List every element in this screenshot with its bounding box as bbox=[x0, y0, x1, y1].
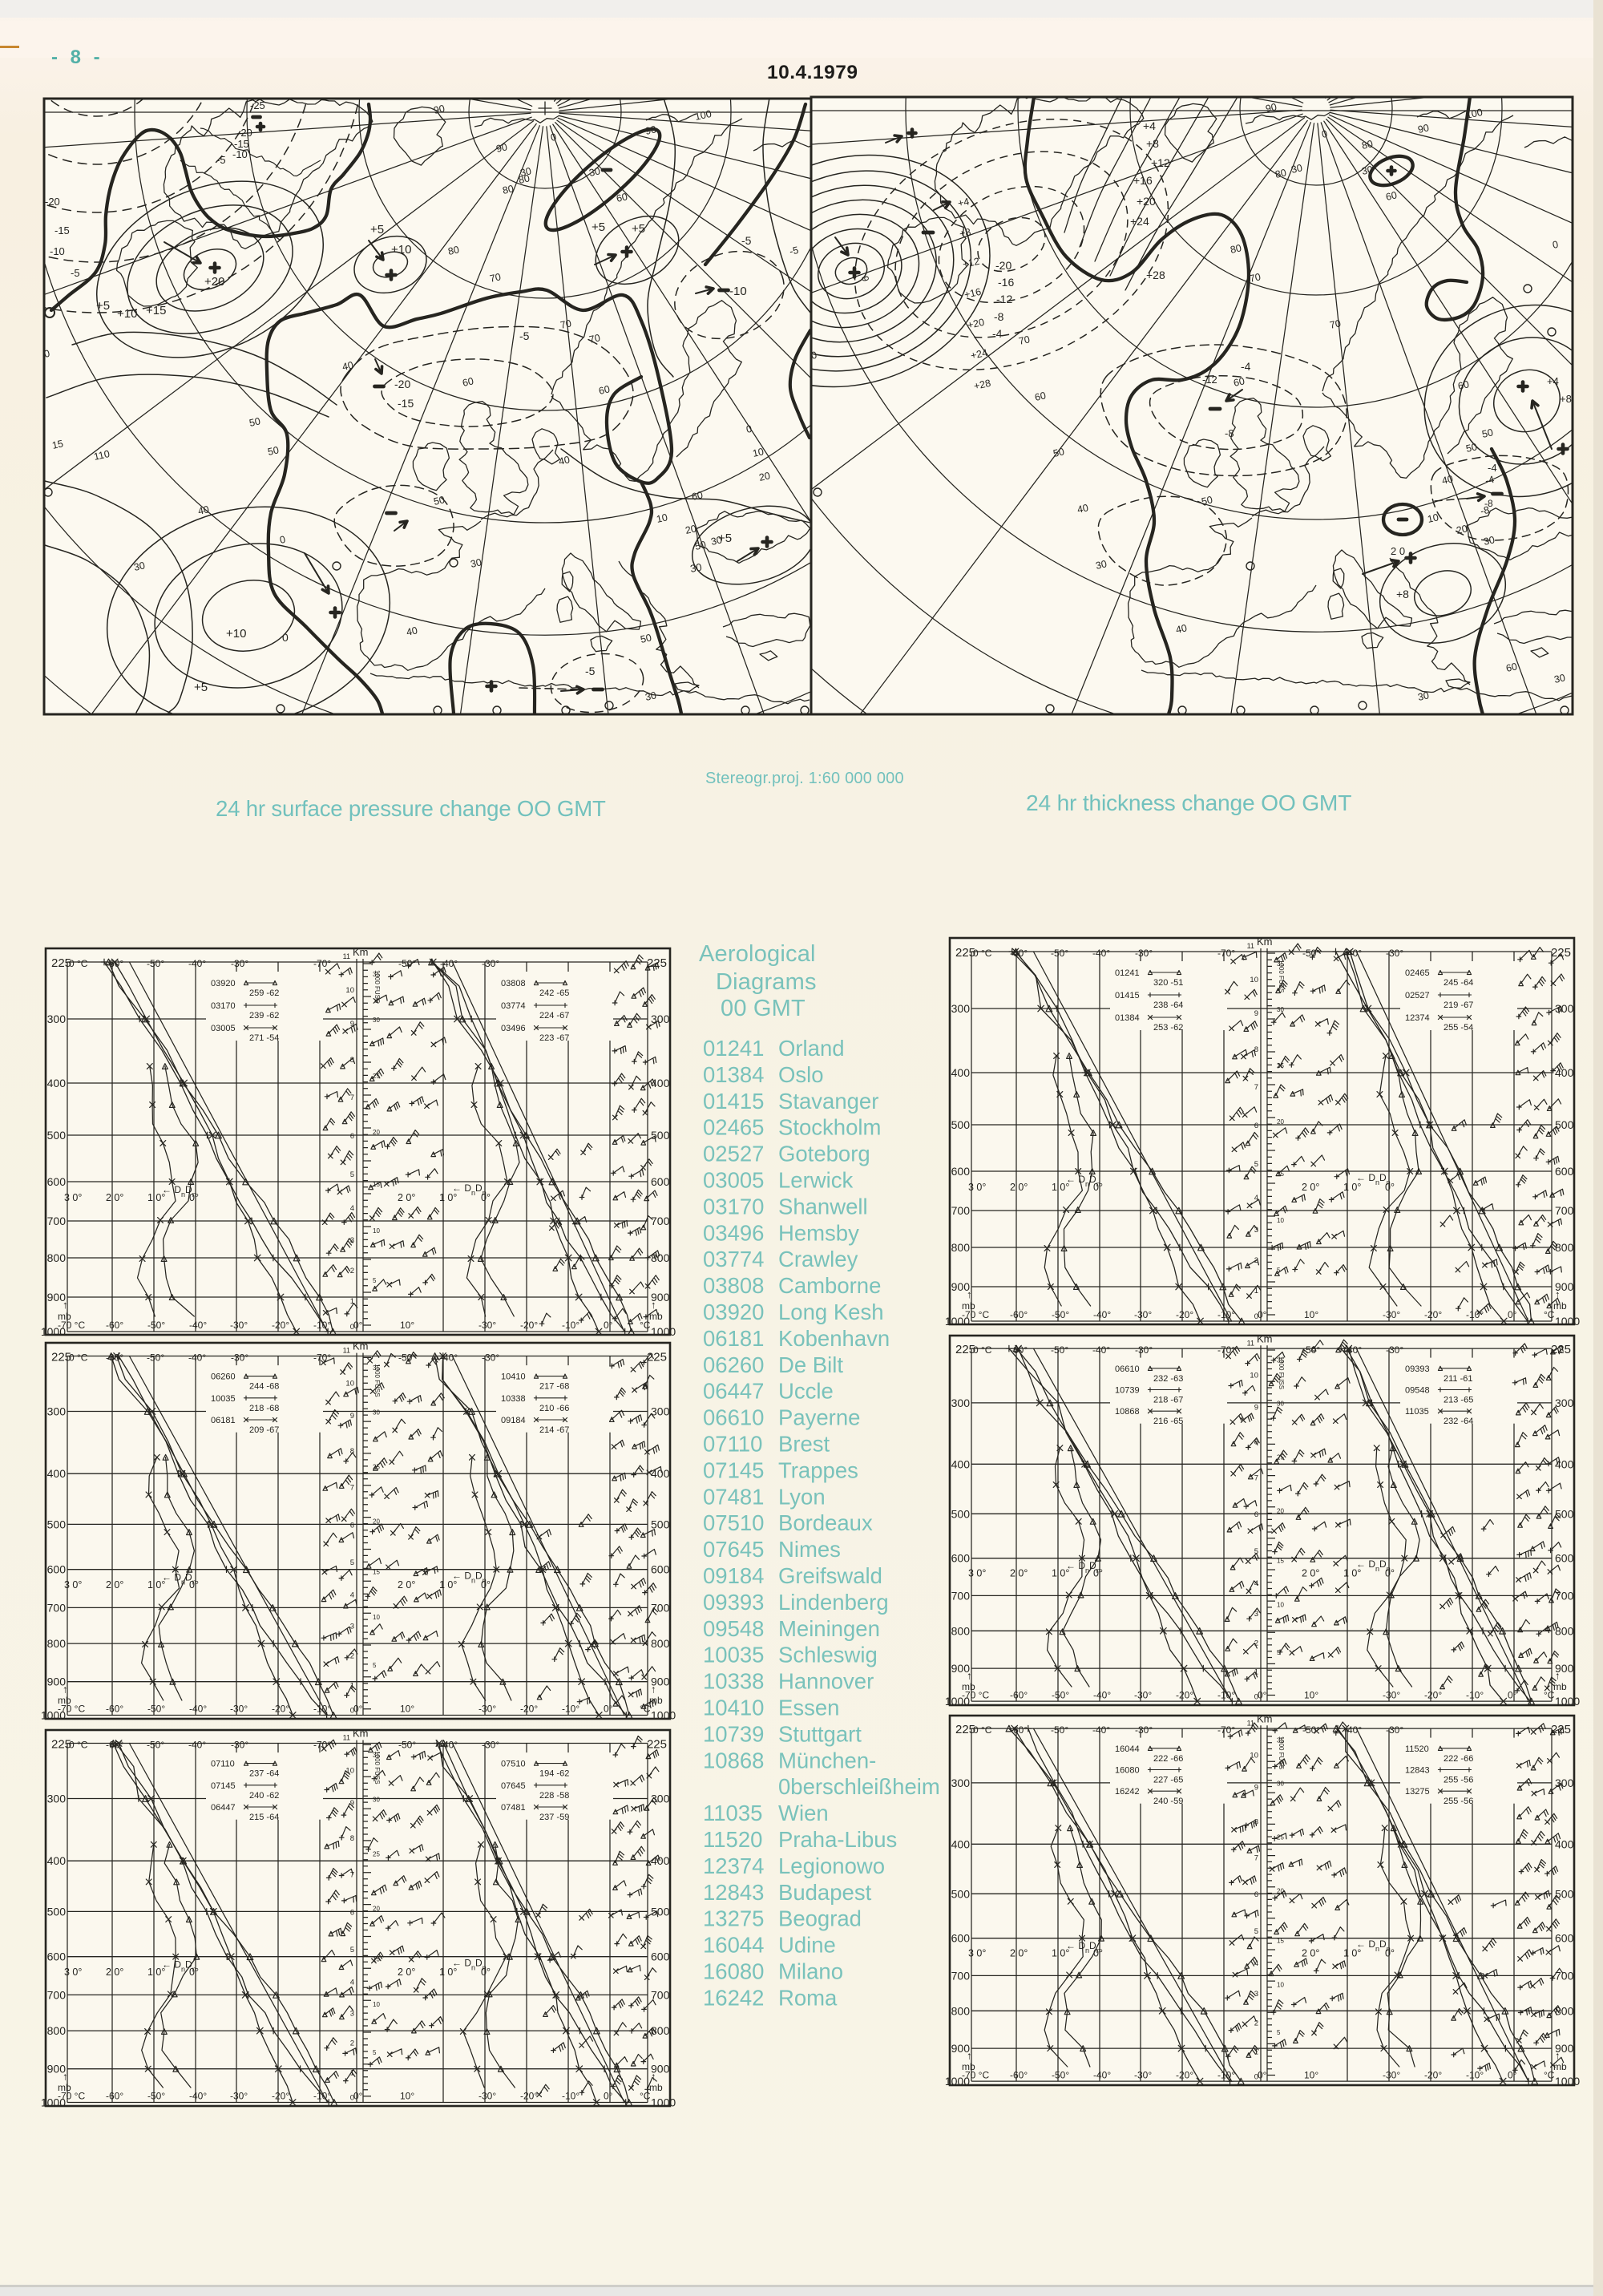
svg-text:271 -54: 271 -54 bbox=[249, 1033, 279, 1043]
svg-text:-30°: -30° bbox=[231, 1739, 248, 1750]
svg-text:mb: mb bbox=[649, 2082, 663, 2093]
svg-text:-30°: -30° bbox=[1386, 948, 1403, 959]
svg-text:245 -64: 245 -64 bbox=[1444, 978, 1473, 988]
svg-text:40: 40 bbox=[558, 454, 571, 467]
svg-text:800: 800 bbox=[47, 2024, 67, 2037]
svg-text:30: 30 bbox=[373, 1017, 380, 1024]
svg-text:01415: 01415 bbox=[703, 1089, 764, 1114]
svg-text:+20: +20 bbox=[204, 275, 224, 289]
svg-text:3 0°: 3 0° bbox=[968, 1182, 986, 1193]
svg-text:10338: 10338 bbox=[703, 1669, 764, 1694]
svg-text:-10°: -10° bbox=[1466, 2069, 1484, 2080]
svg-text:-30°: -30° bbox=[231, 958, 248, 969]
svg-text:Roma: Roma bbox=[778, 1985, 838, 2010]
svg-text:°C: °C bbox=[640, 1320, 651, 1331]
svg-text:°C: °C bbox=[1544, 1309, 1555, 1320]
svg-text:-30°: -30° bbox=[1134, 1309, 1152, 1320]
svg-text:-50°: -50° bbox=[147, 958, 164, 969]
svg-text:↑: ↑ bbox=[63, 2070, 68, 2082]
svg-text:700: 700 bbox=[951, 1969, 971, 1982]
svg-text:-12: -12 bbox=[996, 293, 1012, 305]
svg-text:90: 90 bbox=[1265, 101, 1278, 115]
svg-text:800: 800 bbox=[951, 2004, 971, 2017]
svg-text:500: 500 bbox=[47, 1129, 67, 1142]
svg-text:-40°: -40° bbox=[189, 1320, 207, 1331]
svg-text:-70 °C: -70 °C bbox=[962, 1689, 989, 1700]
svg-text:06610: 06610 bbox=[1115, 1364, 1140, 1374]
svg-text:-70°: -70° bbox=[1217, 948, 1235, 959]
svg-text:03170: 03170 bbox=[703, 1194, 764, 1219]
svg-text:02527: 02527 bbox=[703, 1142, 764, 1166]
svg-text:↑: ↑ bbox=[63, 1683, 68, 1695]
svg-text:-15: -15 bbox=[55, 224, 70, 236]
svg-text:01415: 01415 bbox=[1115, 991, 1140, 1000]
svg-text:Km: Km bbox=[353, 1340, 369, 1352]
svg-text:0°: 0° bbox=[604, 2091, 613, 2102]
svg-text:9: 9 bbox=[1254, 1404, 1258, 1413]
svg-text:10739: 10739 bbox=[703, 1721, 764, 1746]
svg-text:1000: 1000 bbox=[651, 2096, 676, 2109]
svg-text:20: 20 bbox=[373, 1518, 380, 1525]
svg-text:15: 15 bbox=[373, 1569, 380, 1576]
svg-text:35: 35 bbox=[1277, 1356, 1284, 1364]
svg-text:400: 400 bbox=[651, 1077, 670, 1089]
svg-text:Wien: Wien bbox=[778, 1801, 829, 1825]
svg-text:09548: 09548 bbox=[1405, 1386, 1430, 1396]
svg-text:-70 °C: -70 °C bbox=[58, 2091, 85, 2102]
svg-text:60: 60 bbox=[598, 383, 612, 397]
svg-text:16242: 16242 bbox=[1115, 1787, 1140, 1797]
svg-text:6: 6 bbox=[350, 1908, 354, 1917]
svg-text:1000: 1000 bbox=[1555, 2075, 1580, 2088]
svg-text:-20°: -20° bbox=[1424, 1309, 1442, 1320]
svg-text:10410: 10410 bbox=[501, 1372, 526, 1382]
svg-text:03774: 03774 bbox=[501, 1001, 526, 1011]
svg-text:80: 80 bbox=[1361, 138, 1375, 152]
svg-text:-60°: -60° bbox=[106, 2091, 123, 2102]
svg-text:Km: Km bbox=[353, 1728, 369, 1740]
svg-text:30: 30 bbox=[1277, 1006, 1284, 1013]
svg-text:5: 5 bbox=[350, 1170, 354, 1179]
svg-text:- 8 -: - 8 - bbox=[51, 46, 103, 68]
svg-text:°C: °C bbox=[640, 2091, 651, 2102]
svg-text:02465: 02465 bbox=[703, 1115, 764, 1140]
svg-text:300: 300 bbox=[1555, 1777, 1574, 1789]
svg-text:11035: 11035 bbox=[703, 1801, 762, 1825]
svg-text:500: 500 bbox=[1555, 1507, 1574, 1520]
svg-text:+10: +10 bbox=[226, 627, 246, 641]
svg-text:5: 5 bbox=[373, 1662, 377, 1669]
svg-text:30: 30 bbox=[1361, 164, 1375, 177]
svg-text:600: 600 bbox=[951, 1932, 971, 1945]
svg-text:10410: 10410 bbox=[703, 1696, 764, 1720]
svg-text:215 -64: 215 -64 bbox=[249, 1813, 279, 1822]
svg-text:50: 50 bbox=[433, 494, 446, 507]
svg-text:10: 10 bbox=[1250, 1371, 1258, 1380]
svg-text:2 0°: 2 0° bbox=[1302, 1568, 1319, 1579]
svg-text:3 0°: 3 0° bbox=[64, 1192, 82, 1203]
svg-text:15: 15 bbox=[1277, 1937, 1284, 1944]
svg-text:+5: +5 bbox=[194, 681, 208, 694]
svg-text:+4: +4 bbox=[957, 196, 971, 209]
svg-text:10739: 10739 bbox=[1115, 1386, 1140, 1396]
svg-text:259 -62: 259 -62 bbox=[249, 988, 279, 998]
svg-text:60: 60 bbox=[1457, 378, 1471, 392]
svg-text:1 0°: 1 0° bbox=[1343, 1182, 1361, 1193]
svg-text:217 -68: 217 -68 bbox=[539, 1382, 569, 1392]
svg-text:+8: +8 bbox=[959, 226, 972, 240]
svg-text:-50°: -50° bbox=[147, 1739, 164, 1750]
svg-text:Uccle: Uccle bbox=[778, 1379, 834, 1404]
svg-text:07110: 07110 bbox=[703, 1432, 762, 1457]
svg-text:400: 400 bbox=[651, 1854, 670, 1867]
svg-text:24 hr surface pressure change: 24 hr surface pressure change OO GMT bbox=[216, 796, 606, 821]
svg-text:400: 400 bbox=[951, 1066, 971, 1079]
svg-text:90: 90 bbox=[433, 103, 446, 116]
svg-text:600: 600 bbox=[651, 1175, 670, 1188]
svg-text:20: 20 bbox=[373, 1129, 380, 1136]
svg-text:03005: 03005 bbox=[703, 1168, 764, 1193]
svg-text:09393: 09393 bbox=[703, 1590, 764, 1615]
svg-text:500: 500 bbox=[47, 1905, 67, 1918]
svg-text:-8: -8 bbox=[1225, 427, 1234, 439]
svg-text:03920: 03920 bbox=[703, 1300, 764, 1324]
svg-text:11: 11 bbox=[343, 1347, 350, 1355]
svg-text:700: 700 bbox=[651, 1215, 670, 1227]
svg-text:40: 40 bbox=[1441, 473, 1455, 487]
svg-text:-25: -25 bbox=[250, 99, 265, 111]
svg-text:4: 4 bbox=[350, 1979, 354, 1987]
svg-text:30: 30 bbox=[689, 561, 703, 575]
svg-text:30: 30 bbox=[1290, 162, 1304, 176]
svg-text:2 0°: 2 0° bbox=[1010, 1568, 1028, 1579]
svg-text:-70 °C: -70 °C bbox=[58, 1704, 85, 1715]
svg-text:50: 50 bbox=[1481, 426, 1495, 440]
svg-text:211 -61: 211 -61 bbox=[1444, 1374, 1473, 1384]
svg-text:800: 800 bbox=[47, 1637, 67, 1650]
svg-text:60: 60 bbox=[691, 489, 705, 503]
svg-text:Shanwell: Shanwell bbox=[778, 1194, 868, 1219]
svg-text:400: 400 bbox=[47, 1077, 67, 1089]
svg-text:30: 30 bbox=[588, 165, 602, 179]
svg-text:-5: -5 bbox=[741, 234, 752, 247]
svg-text:1 0°: 1 0° bbox=[439, 1192, 457, 1203]
svg-text:-16: -16 bbox=[998, 276, 1014, 289]
svg-text:1: 1 bbox=[1254, 1287, 1258, 1296]
svg-text:-70°: -70° bbox=[313, 958, 331, 969]
svg-text:-70 °C: -70 °C bbox=[58, 1320, 85, 1331]
svg-text:70: 70 bbox=[489, 271, 503, 285]
svg-text:9: 9 bbox=[350, 1412, 354, 1421]
svg-text:30: 30 bbox=[1277, 1401, 1284, 1408]
svg-text:-20: -20 bbox=[45, 196, 60, 208]
svg-text:Diagrams: Diagrams bbox=[716, 969, 817, 995]
svg-text:-5: -5 bbox=[519, 329, 530, 342]
svg-text:Stavanger: Stavanger bbox=[778, 1089, 878, 1114]
svg-text:218 -67: 218 -67 bbox=[1153, 1396, 1183, 1405]
svg-text:15: 15 bbox=[1277, 1557, 1284, 1564]
svg-text:30: 30 bbox=[1095, 558, 1108, 572]
svg-text:16080: 16080 bbox=[1115, 1766, 1140, 1776]
svg-text:02465: 02465 bbox=[1405, 968, 1430, 978]
svg-text:-30°: -30° bbox=[1386, 1724, 1403, 1736]
svg-text:-70°: -70° bbox=[1217, 1724, 1235, 1736]
svg-text:40: 40 bbox=[1076, 502, 1090, 515]
svg-text:7: 7 bbox=[350, 1484, 354, 1493]
svg-text:09393: 09393 bbox=[1405, 1364, 1430, 1374]
svg-text:50: 50 bbox=[1465, 441, 1479, 455]
svg-text:07110: 07110 bbox=[211, 1760, 235, 1769]
svg-text:2 0: 2 0 bbox=[1391, 545, 1405, 557]
svg-text:219 -67: 219 -67 bbox=[1444, 1000, 1473, 1010]
svg-text:30: 30 bbox=[1417, 689, 1431, 703]
svg-text:7: 7 bbox=[1254, 1853, 1258, 1862]
svg-text:-40°: -40° bbox=[1092, 1344, 1110, 1356]
svg-text:12843: 12843 bbox=[703, 1880, 764, 1905]
svg-text:03774: 03774 bbox=[703, 1247, 764, 1271]
svg-text:238 -64: 238 -64 bbox=[1153, 1000, 1183, 1010]
svg-text:10°: 10° bbox=[400, 2091, 414, 2102]
svg-text:-50°: -50° bbox=[1051, 1724, 1068, 1736]
svg-text:-50°: -50° bbox=[147, 1704, 165, 1715]
svg-text:Camborne: Camborne bbox=[778, 1273, 881, 1298]
svg-text:15: 15 bbox=[51, 438, 65, 451]
svg-text:300: 300 bbox=[47, 1405, 67, 1418]
svg-text:600: 600 bbox=[47, 1563, 67, 1576]
svg-text:5: 5 bbox=[373, 2049, 377, 2056]
svg-text:München-: München- bbox=[778, 1748, 876, 1773]
svg-text:500: 500 bbox=[951, 1507, 971, 1520]
svg-text:16080: 16080 bbox=[703, 1959, 764, 1984]
svg-text:11: 11 bbox=[1247, 942, 1254, 950]
svg-text:+8: +8 bbox=[1396, 588, 1409, 600]
svg-text:-70 °C: -70 °C bbox=[962, 1309, 989, 1320]
svg-text:-50°: -50° bbox=[1051, 1344, 1068, 1356]
svg-text:0berschleißheim: 0berschleißheim bbox=[778, 1774, 940, 1799]
svg-text:-10°: -10° bbox=[562, 1704, 579, 1715]
svg-text:20: 20 bbox=[758, 470, 772, 483]
svg-text:Km: Km bbox=[1257, 936, 1273, 948]
svg-text:60: 60 bbox=[1505, 661, 1519, 674]
svg-text:2 0°: 2 0° bbox=[106, 1192, 123, 1203]
svg-text:12374: 12374 bbox=[1405, 1013, 1430, 1023]
svg-text:0 °C: 0 °C bbox=[973, 948, 992, 959]
svg-text:25: 25 bbox=[373, 1850, 380, 1857]
svg-text:5: 5 bbox=[1277, 2029, 1281, 2036]
svg-text:-30°: -30° bbox=[1135, 948, 1153, 959]
svg-text:07481: 07481 bbox=[501, 1803, 526, 1813]
svg-text:70: 70 bbox=[559, 317, 573, 331]
svg-text:0°: 0° bbox=[353, 1320, 363, 1331]
svg-text:6: 6 bbox=[1254, 1122, 1258, 1130]
svg-text:80: 80 bbox=[1274, 167, 1288, 180]
svg-text:30: 30 bbox=[133, 560, 147, 573]
svg-text:400: 400 bbox=[951, 1837, 971, 1850]
svg-text:3 0°: 3 0° bbox=[968, 1568, 986, 1579]
svg-text:40: 40 bbox=[1175, 622, 1189, 636]
svg-text:1000: 1000 bbox=[1555, 1315, 1580, 1328]
svg-text:00 GMT: 00 GMT bbox=[721, 996, 806, 1021]
svg-text:2 0°: 2 0° bbox=[1302, 1948, 1319, 1959]
svg-text:+10: +10 bbox=[391, 243, 411, 257]
svg-text:40: 40 bbox=[341, 359, 355, 373]
svg-text:2 0°: 2 0° bbox=[398, 1192, 415, 1203]
svg-text:↑: ↑ bbox=[1555, 1670, 1561, 1682]
svg-text:-30°: -30° bbox=[1383, 2069, 1400, 2080]
svg-text:0°: 0° bbox=[1258, 1689, 1267, 1700]
svg-text:10: 10 bbox=[1277, 1982, 1284, 1989]
svg-text:07510: 07510 bbox=[703, 1510, 764, 1535]
svg-text:06447: 06447 bbox=[703, 1379, 764, 1404]
svg-text:-20°: -20° bbox=[1176, 1309, 1193, 1320]
svg-text:0 °C: 0 °C bbox=[69, 958, 88, 969]
svg-text:6: 6 bbox=[1254, 1890, 1258, 1899]
svg-text:Lerwick: Lerwick bbox=[778, 1168, 853, 1193]
svg-text:10.4.1979: 10.4.1979 bbox=[767, 62, 858, 83]
svg-text:-4: -4 bbox=[1241, 360, 1251, 373]
svg-text:10035: 10035 bbox=[211, 1394, 236, 1404]
svg-text:-30°: -30° bbox=[1135, 1724, 1153, 1736]
svg-text:30: 30 bbox=[1277, 1781, 1284, 1788]
svg-text:209 -67: 209 -67 bbox=[249, 1425, 279, 1435]
svg-text:11520: 11520 bbox=[1405, 1744, 1429, 1754]
svg-text:2 0°: 2 0° bbox=[106, 1967, 123, 1978]
svg-text:35: 35 bbox=[373, 1752, 380, 1759]
svg-text:+5: +5 bbox=[592, 220, 605, 234]
svg-text:20: 20 bbox=[1456, 523, 1469, 536]
svg-text:-20°: -20° bbox=[272, 1704, 289, 1715]
svg-text:-20: -20 bbox=[237, 127, 252, 139]
svg-text:07145: 07145 bbox=[211, 1781, 236, 1791]
svg-text:60: 60 bbox=[1233, 375, 1246, 389]
svg-text:Payerne: Payerne bbox=[778, 1405, 860, 1430]
svg-text:-15: -15 bbox=[398, 397, 414, 410]
svg-text:1000: 1000 bbox=[651, 1325, 676, 1338]
svg-text:7: 7 bbox=[350, 1093, 354, 1102]
svg-text:De Bilt: De Bilt bbox=[778, 1352, 843, 1377]
svg-text:+12: +12 bbox=[1151, 156, 1170, 169]
svg-text:-8: -8 bbox=[994, 310, 1004, 323]
svg-text:30: 30 bbox=[1483, 534, 1496, 548]
svg-text:3 0°: 3 0° bbox=[64, 1967, 82, 1978]
svg-text:-40°: -40° bbox=[189, 2091, 207, 2102]
svg-text:01241: 01241 bbox=[1115, 968, 1140, 978]
svg-text:3: 3 bbox=[350, 2010, 354, 2019]
svg-text:227 -65: 227 -65 bbox=[1153, 1776, 1183, 1785]
svg-text:255 -56: 255 -56 bbox=[1444, 1776, 1473, 1785]
svg-text:09548: 09548 bbox=[703, 1616, 764, 1641]
svg-text:-5: -5 bbox=[585, 665, 596, 677]
svg-text:225: 225 bbox=[647, 1738, 667, 1752]
svg-text:5: 5 bbox=[350, 1946, 354, 1954]
svg-text:2 0°: 2 0° bbox=[398, 1579, 415, 1591]
svg-text:218 -68: 218 -68 bbox=[249, 1404, 279, 1413]
svg-text:2 0°: 2 0° bbox=[1302, 1182, 1319, 1193]
svg-text:222 -66: 222 -66 bbox=[1444, 1754, 1473, 1764]
svg-text:10: 10 bbox=[1277, 1602, 1284, 1609]
svg-text:Oslo: Oslo bbox=[778, 1062, 824, 1087]
svg-text:Aerological: Aerological bbox=[699, 941, 816, 967]
svg-text:244 -68: 244 -68 bbox=[249, 1382, 279, 1392]
svg-text:0°: 0° bbox=[1258, 1309, 1267, 1320]
svg-text:60: 60 bbox=[616, 191, 629, 204]
svg-text:Trappes: Trappes bbox=[778, 1457, 858, 1482]
svg-text:80: 80 bbox=[1230, 242, 1243, 256]
svg-text:03170: 03170 bbox=[211, 1001, 236, 1011]
svg-text:50: 50 bbox=[694, 539, 708, 552]
svg-text:-50°: -50° bbox=[398, 958, 416, 969]
svg-text:+28: +28 bbox=[1146, 269, 1165, 281]
svg-text:-30°: -30° bbox=[230, 2091, 248, 2102]
svg-text:5: 5 bbox=[1254, 1160, 1258, 1169]
svg-text:6: 6 bbox=[350, 1132, 354, 1141]
svg-text:+5: +5 bbox=[632, 222, 645, 236]
svg-text:+8: +8 bbox=[1560, 393, 1572, 405]
svg-text:9: 9 bbox=[1254, 1009, 1258, 1018]
svg-text:-60°: -60° bbox=[1010, 1689, 1028, 1700]
svg-text:600: 600 bbox=[47, 1175, 67, 1188]
svg-text:Stockholm: Stockholm bbox=[778, 1115, 881, 1140]
svg-text:06181: 06181 bbox=[703, 1326, 764, 1351]
svg-text:6: 6 bbox=[350, 1521, 354, 1530]
svg-text:-20°: -20° bbox=[520, 1320, 538, 1331]
svg-text:10°: 10° bbox=[1304, 2069, 1318, 2080]
svg-text:↑: ↑ bbox=[967, 1670, 972, 1682]
svg-text:0°: 0° bbox=[353, 1704, 363, 1715]
svg-text:3 0°: 3 0° bbox=[968, 1948, 986, 1959]
svg-text:Udine: Udine bbox=[778, 1933, 836, 1958]
svg-text:-12: -12 bbox=[1202, 374, 1217, 386]
svg-text:-40°: -40° bbox=[1092, 948, 1110, 959]
svg-text:10: 10 bbox=[656, 511, 669, 525]
svg-text:223 -67: 223 -67 bbox=[539, 1033, 569, 1043]
svg-text:700: 700 bbox=[651, 1988, 670, 2001]
svg-text:03005: 03005 bbox=[211, 1024, 236, 1033]
svg-text:06447: 06447 bbox=[211, 1803, 236, 1813]
svg-text:237 -64: 237 -64 bbox=[249, 1769, 279, 1779]
svg-text:70: 70 bbox=[1329, 317, 1343, 331]
svg-text:01384: 01384 bbox=[1115, 1013, 1140, 1023]
svg-text:255 -56: 255 -56 bbox=[1444, 1797, 1473, 1806]
svg-text:Lindenberg: Lindenberg bbox=[778, 1590, 889, 1615]
svg-text:-20°: -20° bbox=[1424, 1689, 1442, 1700]
svg-text:↑: ↑ bbox=[651, 1683, 656, 1695]
svg-text:-30°: -30° bbox=[478, 2091, 496, 2102]
svg-text:+24: +24 bbox=[1130, 215, 1149, 228]
svg-text:70: 70 bbox=[588, 332, 602, 346]
svg-text:-20°: -20° bbox=[1176, 1689, 1193, 1700]
svg-text:-30°: -30° bbox=[230, 1320, 248, 1331]
svg-text:11: 11 bbox=[343, 952, 350, 960]
svg-text:Essen: Essen bbox=[778, 1696, 839, 1720]
svg-text:4: 4 bbox=[350, 1204, 354, 1213]
svg-text:35: 35 bbox=[1277, 1736, 1284, 1744]
svg-text:11: 11 bbox=[1247, 1339, 1254, 1347]
svg-text:35: 35 bbox=[373, 1364, 380, 1372]
svg-text:700: 700 bbox=[47, 1601, 67, 1614]
svg-text:-20°: -20° bbox=[520, 1704, 538, 1715]
svg-text:03496: 03496 bbox=[703, 1220, 764, 1245]
svg-text:Praha-Libus: Praha-Libus bbox=[778, 1827, 897, 1852]
svg-text:800: 800 bbox=[651, 2024, 670, 2037]
svg-text:Lyon: Lyon bbox=[778, 1484, 826, 1509]
svg-text:-30°: -30° bbox=[1386, 1344, 1403, 1356]
svg-text:12374: 12374 bbox=[703, 1853, 764, 1878]
svg-text:-30°: -30° bbox=[1383, 1309, 1400, 1320]
svg-text:-30°: -30° bbox=[482, 1352, 499, 1363]
svg-text:3 0°: 3 0° bbox=[64, 1579, 82, 1591]
svg-text:-30°: -30° bbox=[478, 1320, 496, 1331]
